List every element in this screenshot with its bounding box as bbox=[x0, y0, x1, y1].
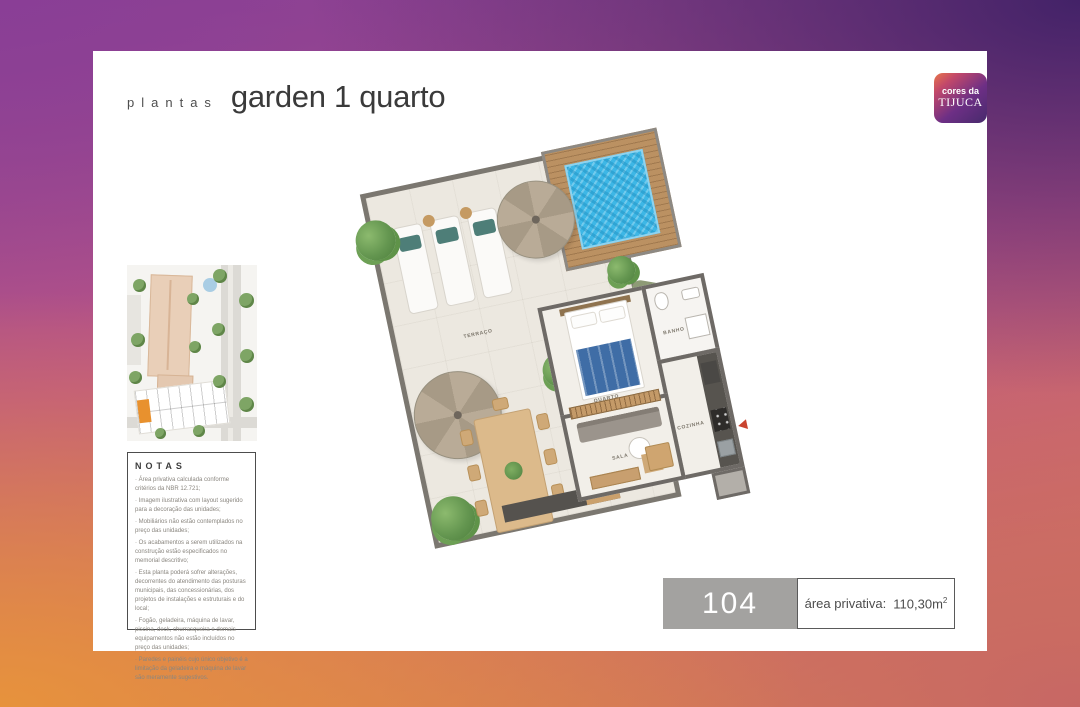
tree-icon bbox=[131, 333, 145, 347]
shower-icon bbox=[685, 313, 711, 339]
sideboard bbox=[590, 467, 642, 490]
entry-landing bbox=[711, 467, 750, 500]
cores-da-tijuca-logo: cores da TIJUCA bbox=[934, 73, 987, 123]
note-item: Os acabamentos a serem utilizados na con… bbox=[135, 539, 248, 566]
page-title: garden 1 quarto bbox=[231, 79, 445, 115]
tree-icon bbox=[129, 371, 142, 384]
note-item: Paredes e painéis cujo único objetivo é … bbox=[135, 656, 248, 683]
tree-icon bbox=[193, 425, 205, 437]
unit-number: 104 bbox=[702, 587, 758, 621]
note-item: Esta planta poderá sofrer alterações, de… bbox=[135, 569, 248, 614]
floor-plan: TERRAÇO QUARTO BANHO COZINHA bbox=[360, 128, 754, 569]
tree-icon bbox=[189, 341, 201, 353]
room-label-sala: SALA bbox=[612, 453, 629, 462]
notes-box: NOTAS Área privativa calculada conforme … bbox=[127, 452, 256, 630]
pillow bbox=[570, 311, 598, 329]
tree-icon bbox=[213, 269, 227, 283]
site-plan-thumbnail bbox=[127, 265, 257, 441]
note-item: Mobiliários não estão contemplados no pr… bbox=[135, 518, 248, 536]
tree-icon bbox=[212, 323, 225, 336]
logo-line2: TIJUCA bbox=[938, 96, 982, 109]
page-header: plantas garden 1 quarto bbox=[127, 79, 445, 115]
brochure-page: plantas garden 1 quarto cores da TIJUCA … bbox=[93, 51, 987, 651]
sink-icon bbox=[681, 286, 701, 301]
unit-number-badge: 104 bbox=[663, 578, 797, 629]
header-eyebrow: plantas bbox=[127, 95, 218, 110]
notes-title: NOTAS bbox=[135, 461, 248, 471]
tree-icon bbox=[187, 293, 199, 305]
kitchen-sink-icon bbox=[717, 438, 736, 457]
highlighted-unit-marker bbox=[137, 399, 152, 423]
area-value: 110,30m2 bbox=[893, 596, 947, 611]
small-dining-table bbox=[644, 442, 674, 472]
area-label: área privativa: bbox=[805, 596, 887, 611]
tree-icon bbox=[240, 349, 254, 363]
note-item: Área privativa calculada conforme critér… bbox=[135, 476, 248, 494]
site-path bbox=[127, 295, 141, 365]
tree-icon bbox=[239, 293, 254, 308]
note-item: Imagem ilustrativa com layout sugerido p… bbox=[135, 497, 248, 515]
pool bbox=[564, 149, 660, 250]
note-item: Fogão, geladeira, máquina de lavar, pisc… bbox=[135, 617, 248, 653]
room-label-cozinha: COZINHA bbox=[677, 420, 705, 432]
bed bbox=[564, 300, 645, 401]
room-label-banho: BANHO bbox=[663, 326, 686, 336]
tree-icon bbox=[133, 279, 146, 292]
tree-icon bbox=[239, 397, 254, 412]
toilet-icon bbox=[653, 291, 670, 312]
tree-icon bbox=[155, 428, 166, 439]
pillow bbox=[598, 305, 626, 323]
private-area-box: área privativa: 110,30m2 bbox=[797, 578, 955, 629]
notes-list: Área privativa calculada conforme critér… bbox=[135, 476, 248, 683]
site-building bbox=[147, 274, 193, 377]
tree-icon bbox=[213, 375, 226, 388]
entrance-arrow-icon bbox=[737, 419, 748, 431]
bed-blanket bbox=[576, 338, 641, 396]
